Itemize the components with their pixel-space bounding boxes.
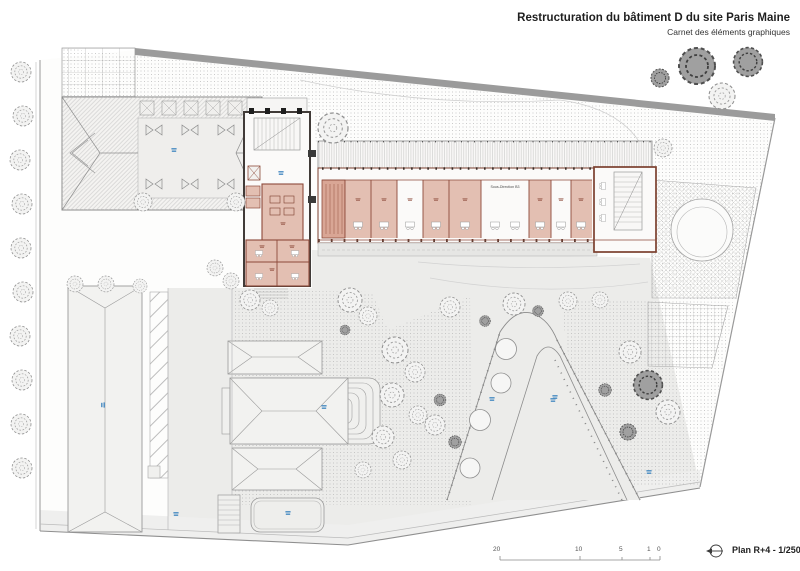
page-title: Restructuration du bâtiment D du site Pa… <box>517 12 790 24</box>
batiment-d-head <box>244 98 316 298</box>
site-plan-canvas: Sous-Direction B3 <box>0 0 800 571</box>
scale-tick-1: 1 <box>647 546 651 553</box>
scale-tick-5: 5 <box>619 546 623 553</box>
room-label-sous-direction: Sous-Direction B3 <box>491 185 520 189</box>
batiment-d-wing: Sous-Direction B3 <box>318 141 656 256</box>
street-trees <box>10 62 33 478</box>
scale-bar <box>500 556 660 560</box>
north-arrow-icon <box>706 545 723 557</box>
plan-name-label: Plan R+4 - 1/250 <box>732 545 800 555</box>
page-subtitle: Carnet des éléments graphiques <box>667 27 790 37</box>
existing-building-north <box>62 97 262 210</box>
scale-tick-0: 0 <box>657 546 661 553</box>
scale-tick-20: 20 <box>493 546 500 553</box>
scale-tick-10: 10 <box>575 546 582 553</box>
site-plan-drawing: Sous-Direction B3 <box>0 0 800 571</box>
